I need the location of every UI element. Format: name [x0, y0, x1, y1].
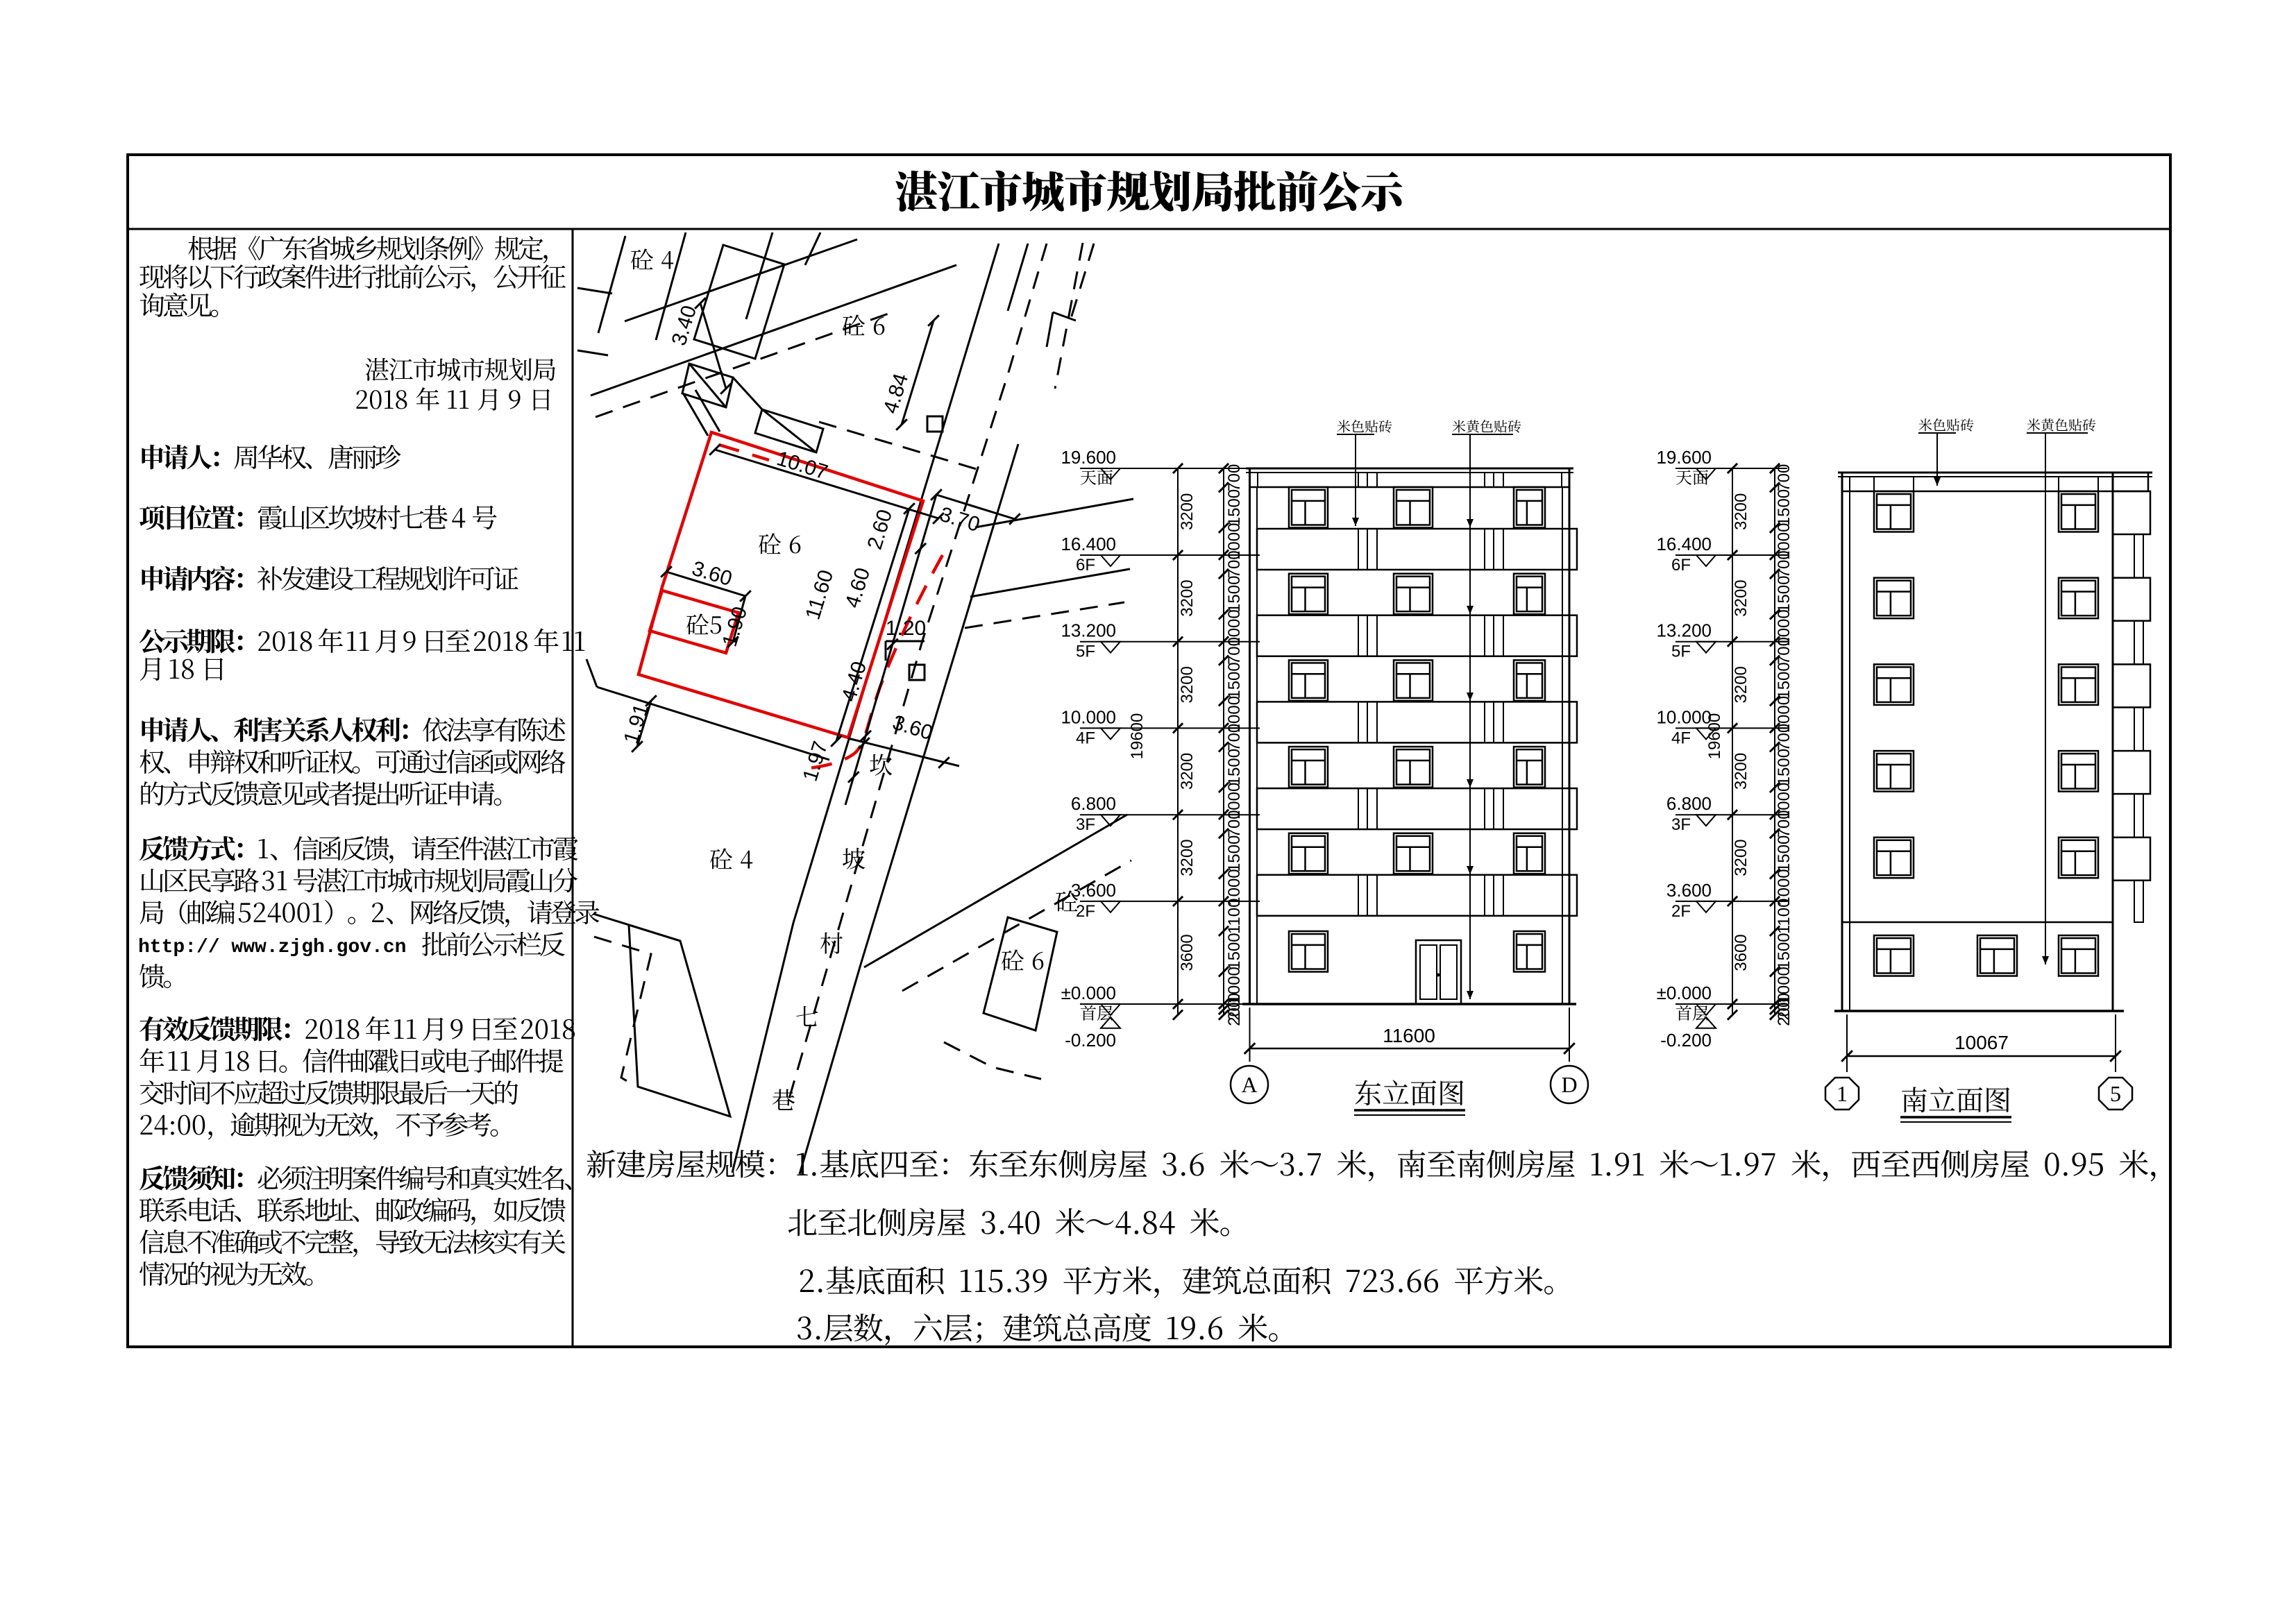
svg-text:4F: 4F	[1671, 729, 1691, 747]
svg-text:16.400: 16.400	[1061, 534, 1116, 554]
svg-text:1500: 1500	[1225, 835, 1244, 872]
svg-text:3200: 3200	[1732, 666, 1750, 703]
svg-text:6.800: 6.800	[1666, 793, 1712, 814]
svg-text:700: 700	[1775, 464, 1793, 492]
svg-text:4F: 4F	[1076, 729, 1095, 747]
svg-text:1100: 1100	[1225, 899, 1244, 935]
svg-text:1500: 1500	[1775, 749, 1793, 785]
svg-text:1.20: 1.20	[886, 617, 926, 640]
svg-text:1500: 1500	[1775, 489, 1793, 526]
svg-text:3.600: 3.600	[1071, 880, 1116, 901]
svg-text:3F: 3F	[1671, 815, 1691, 834]
svg-text:3200: 3200	[1178, 666, 1197, 703]
svg-text:19600: 19600	[1705, 713, 1724, 760]
svg-text:3F: 3F	[1076, 815, 1095, 834]
svg-text:6F: 6F	[1076, 556, 1095, 575]
svg-text:19600: 19600	[1128, 713, 1147, 760]
svg-text:700: 700	[1775, 724, 1793, 751]
svg-text:http:// www.zjgh.gov.cn: http:// www.zjgh.gov.cn	[138, 937, 406, 958]
svg-text:1500: 1500	[1225, 576, 1244, 613]
svg-text:16.400: 16.400	[1656, 534, 1712, 554]
svg-text:19.600: 19.600	[1061, 447, 1116, 468]
svg-text:6.800: 6.800	[1071, 793, 1116, 814]
svg-text:10.000: 10.000	[1656, 706, 1712, 727]
svg-text:1500: 1500	[1775, 835, 1793, 872]
svg-text:700: 700	[1225, 550, 1244, 578]
svg-text:D: D	[1561, 1072, 1577, 1097]
svg-text:3.600: 3.600	[1666, 880, 1712, 901]
svg-text:-0.200: -0.200	[1065, 1030, 1116, 1051]
svg-text:3200: 3200	[1178, 753, 1197, 790]
svg-text:11600: 11600	[1383, 1025, 1435, 1046]
svg-text:700: 700	[1775, 637, 1793, 665]
svg-text:2F: 2F	[1076, 902, 1095, 921]
svg-text:±0.000: ±0.000	[1657, 983, 1712, 1003]
svg-text:13.200: 13.200	[1656, 620, 1712, 641]
svg-text:3600: 3600	[1178, 934, 1197, 971]
svg-text:13.200: 13.200	[1061, 620, 1116, 641]
svg-text:700: 700	[1225, 464, 1244, 492]
svg-text:10067: 10067	[1955, 1032, 2009, 1053]
svg-text:3600: 3600	[1732, 934, 1750, 971]
svg-text:700: 700	[1225, 724, 1244, 751]
svg-text:700: 700	[1775, 810, 1793, 838]
svg-text:3200: 3200	[1178, 579, 1197, 616]
svg-text:1500: 1500	[1225, 749, 1244, 785]
svg-text:5F: 5F	[1076, 643, 1095, 661]
svg-text:6F: 6F	[1671, 556, 1691, 575]
svg-text:2F: 2F	[1671, 902, 1691, 921]
svg-text:3200: 3200	[1732, 753, 1750, 790]
svg-text:±0.000: ±0.000	[1061, 983, 1116, 1003]
svg-text:3200: 3200	[1178, 493, 1197, 530]
svg-text:3200: 3200	[1732, 839, 1750, 876]
svg-text:700: 700	[1775, 550, 1793, 578]
svg-text:1500: 1500	[1225, 662, 1244, 699]
svg-text:19.600: 19.600	[1656, 447, 1712, 468]
svg-text:700: 700	[1225, 810, 1244, 838]
svg-text:5F: 5F	[1671, 643, 1691, 661]
svg-text:1500: 1500	[1225, 933, 1244, 969]
svg-text:1500: 1500	[1225, 489, 1244, 526]
svg-text:A: A	[1241, 1072, 1257, 1097]
svg-text:3200: 3200	[1732, 493, 1750, 530]
svg-text:200: 200	[1225, 999, 1244, 1026]
svg-text:3200: 3200	[1178, 839, 1197, 876]
svg-text:10.000: 10.000	[1061, 706, 1116, 727]
svg-text:1500: 1500	[1775, 662, 1793, 699]
svg-text:1500: 1500	[1775, 933, 1793, 969]
svg-text:700: 700	[1225, 637, 1244, 665]
svg-text:-0.200: -0.200	[1660, 1030, 1712, 1051]
svg-text:1: 1	[1837, 1081, 1848, 1106]
svg-text:3200: 3200	[1732, 579, 1750, 616]
svg-text:1500: 1500	[1775, 576, 1793, 613]
svg-text:5: 5	[2110, 1081, 2121, 1106]
